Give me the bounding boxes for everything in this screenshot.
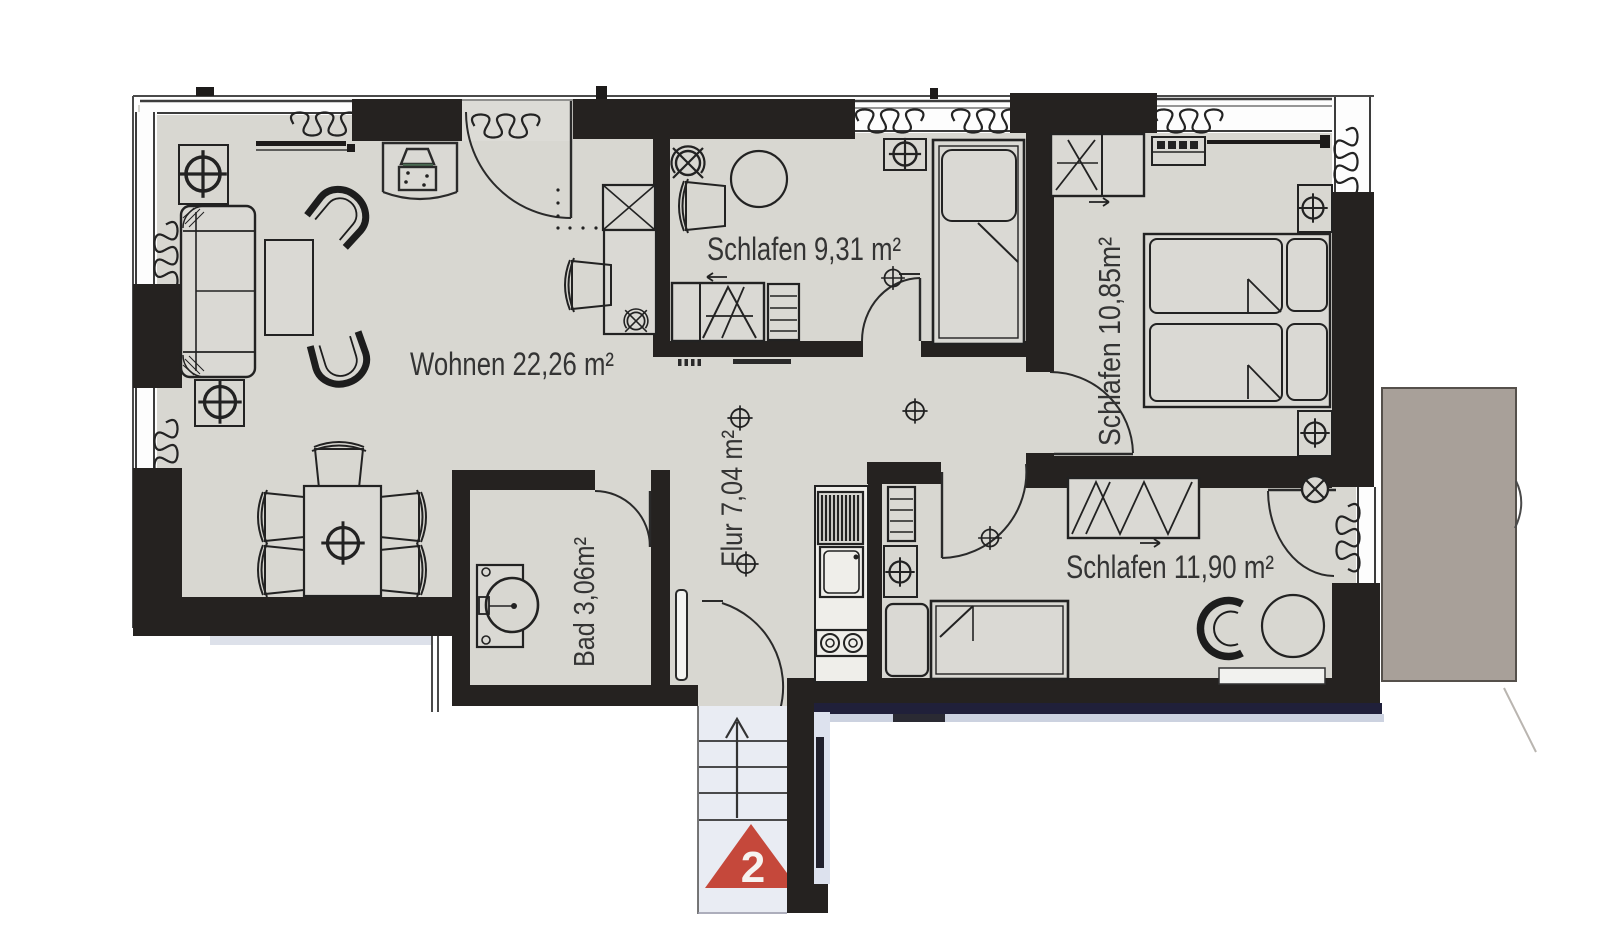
svg-text:Schlafen 9,31 m²: Schlafen 9,31 m² [707,231,901,267]
svg-text:Bad 3,06m²: Bad 3,06m² [569,537,601,667]
svg-text:Wohnen 22,26 m²: Wohnen 22,26 m² [410,346,614,382]
svg-text:Schlafen 10,85m²: Schlafen 10,85m² [1092,237,1127,446]
svg-text:Flur 7,04 m²: Flur 7,04 m² [716,430,749,567]
svg-text:Schlafen 11,90 m²: Schlafen 11,90 m² [1066,549,1274,585]
svg-text:2: 2 [741,843,765,892]
